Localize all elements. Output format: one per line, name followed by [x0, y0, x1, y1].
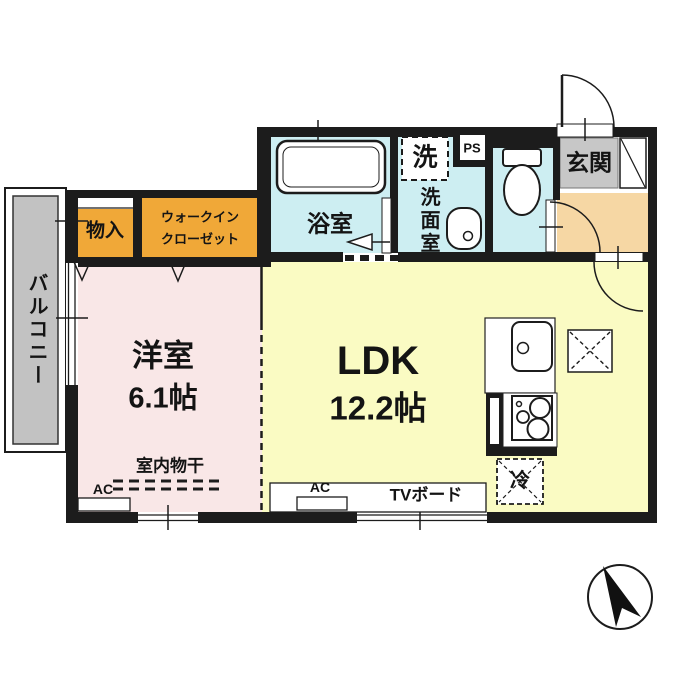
wall-bath-bottom — [262, 252, 343, 262]
entrance-door-arc — [562, 75, 614, 127]
kitchen-wall-slit — [490, 398, 499, 444]
ldk-floor — [262, 262, 648, 512]
hallway-floor — [557, 193, 648, 257]
north-arrow-icon — [588, 565, 652, 629]
wall-washroom-toilet — [485, 135, 493, 252]
indoor-drying-label: 室内物干 — [136, 458, 204, 475]
ac-unit-ldk — [297, 497, 347, 510]
wall-toilet-top — [485, 135, 560, 148]
wall-hall-bottom-right — [643, 252, 657, 262]
storage-label: 物入 — [86, 222, 124, 241]
ac-label-bedroom: AC — [93, 482, 113, 496]
refrigerator-label: 冷 — [510, 471, 530, 491]
wall-toilet-entrance-upper — [553, 135, 560, 200]
ldk-door-opening — [595, 253, 643, 262]
wic-fill — [142, 198, 258, 257]
ldk-size: 12.2帖 — [329, 392, 426, 425]
balcony-label: バルコニー — [26, 273, 46, 388]
wic-label-line1: ウォークイン — [161, 211, 239, 224]
toilet-door-leaf — [546, 200, 555, 252]
washbasin — [447, 208, 481, 249]
western-room-label: 洋室 — [132, 341, 194, 372]
wall-left-lower — [66, 385, 78, 523]
wall-closet-top — [66, 190, 262, 198]
toilet-tank — [503, 149, 541, 166]
faucet — [518, 343, 529, 354]
wic-label-line2: クローゼット — [161, 233, 239, 246]
cabinet-space — [568, 330, 612, 372]
laundry-label: 洗 — [412, 146, 437, 171]
shoe-cabinet — [620, 138, 646, 188]
wall-left-upper — [66, 190, 78, 263]
wall-storage-divider — [133, 198, 142, 257]
entrance-label: 玄関 — [566, 152, 612, 175]
ldk-label: LDK — [337, 341, 419, 381]
wall-right — [648, 127, 657, 523]
western-room-size: 6.1帖 — [128, 385, 197, 414]
pipe-space-label: PS — [463, 142, 480, 155]
floor-plan: 洋室 6.1帖 LDK 12.2帖 浴室 洗 洗面室 PS 玄関 物入 ウォーク… — [0, 0, 700, 700]
wall-ps-bottom — [453, 160, 492, 167]
bathtub — [277, 141, 385, 193]
washroom-label: 洗面室 — [418, 187, 438, 256]
bathroom-door-leaf — [382, 198, 391, 253]
ac-unit-bedroom — [78, 498, 130, 511]
wall-closet-bottom — [66, 257, 262, 267]
wall-kitchen-bottom — [486, 447, 557, 456]
ac-label-ldk: AC — [310, 480, 330, 494]
toilet-bowl — [504, 165, 540, 215]
tv-board-label: TVボード — [390, 487, 463, 504]
bathroom-label: 浴室 — [307, 213, 353, 236]
